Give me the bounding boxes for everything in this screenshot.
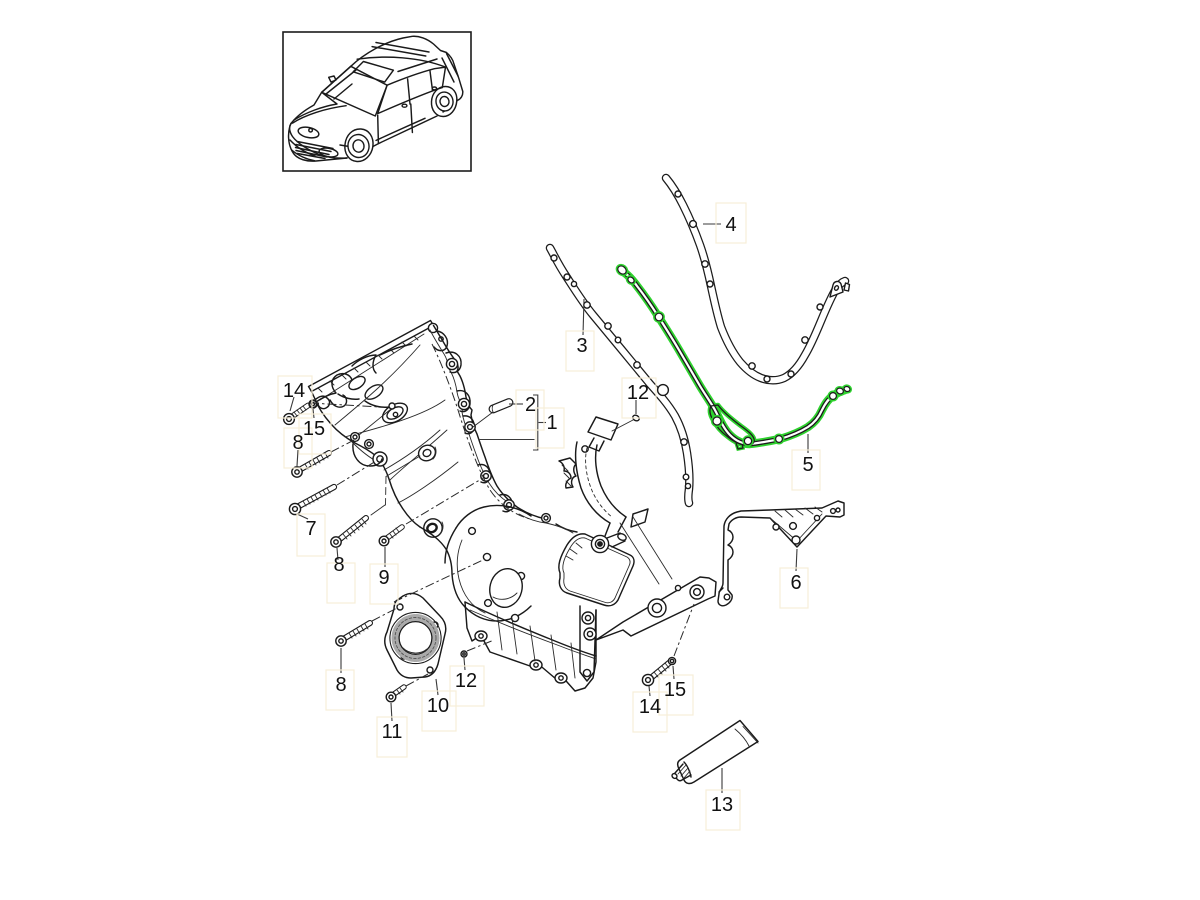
svg-text:3: 3	[576, 335, 587, 357]
svg-text:13: 13	[711, 794, 733, 816]
svg-text:8: 8	[333, 554, 344, 576]
svg-text:15: 15	[303, 418, 325, 440]
svg-text:1: 1	[546, 412, 557, 434]
svg-text:2: 2	[525, 394, 536, 416]
svg-text:5: 5	[802, 454, 813, 476]
svg-text:14: 14	[639, 696, 661, 718]
svg-text:15: 15	[664, 679, 686, 701]
svg-text:7: 7	[305, 518, 316, 540]
svg-text:9: 9	[378, 567, 389, 589]
svg-text:6: 6	[790, 572, 801, 594]
svg-text:8: 8	[335, 674, 346, 696]
svg-text:12: 12	[627, 382, 649, 404]
svg-text:11: 11	[382, 721, 403, 743]
svg-text:10: 10	[427, 695, 449, 717]
svg-text:4: 4	[725, 214, 736, 236]
svg-text:12: 12	[455, 670, 477, 692]
svg-text:14: 14	[283, 380, 305, 402]
